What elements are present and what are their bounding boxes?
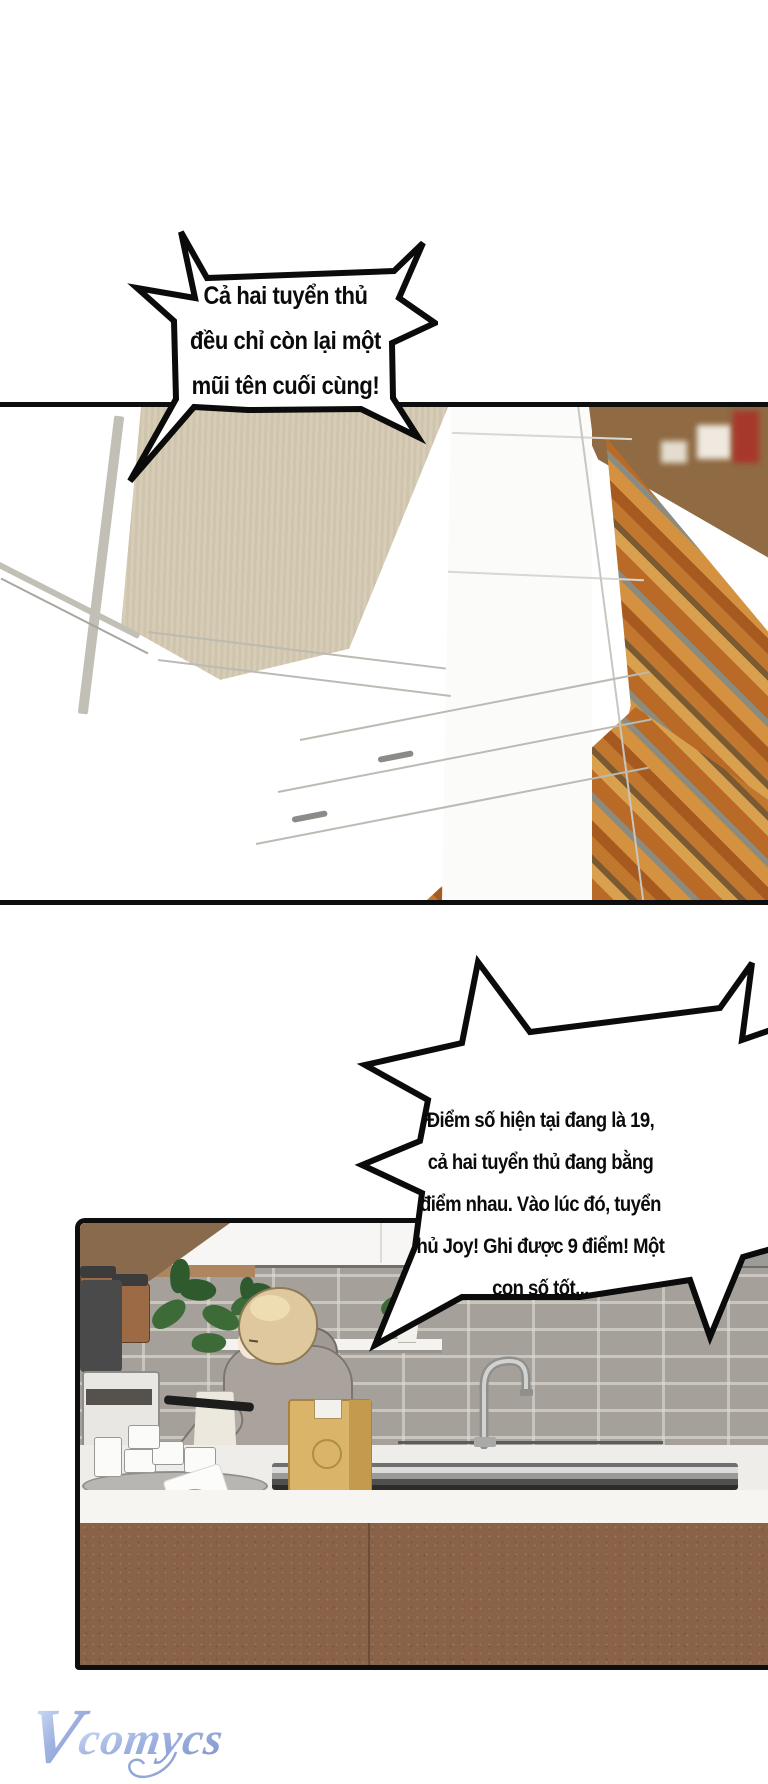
switch-plate <box>697 425 731 459</box>
machine-panel <box>86 1389 152 1405</box>
lower-cabinets <box>80 1523 768 1665</box>
white-cabinet <box>442 407 592 900</box>
drawer-handle <box>291 810 327 823</box>
speech-bubble-2-text: Điểm số hiện tại đang là 19, cả hai tuyể… <box>415 1100 666 1310</box>
outlet <box>661 441 687 463</box>
cabinet-seam <box>368 1523 370 1665</box>
red-object <box>733 411 759 463</box>
coffee-grinder <box>80 1280 122 1372</box>
frame-trim <box>0 561 141 639</box>
speech-bubble-1-text: Cả hai tuyển thủ đều chỉ còn lại một mũi… <box>173 274 397 409</box>
hair-highlight <box>250 1295 290 1321</box>
vase-plant <box>144 1259 254 1399</box>
drawer-handle <box>377 750 413 763</box>
mug <box>94 1437 122 1477</box>
watermark-logo: V comycs <box>18 1692 268 1784</box>
comic-page: Cả hai tuyển thủ đều chỉ còn lại một mũi… <box>0 0 768 1784</box>
watermark-rest: comycs <box>76 1713 227 1764</box>
counter-front-edge <box>80 1490 768 1524</box>
cup <box>128 1425 160 1449</box>
